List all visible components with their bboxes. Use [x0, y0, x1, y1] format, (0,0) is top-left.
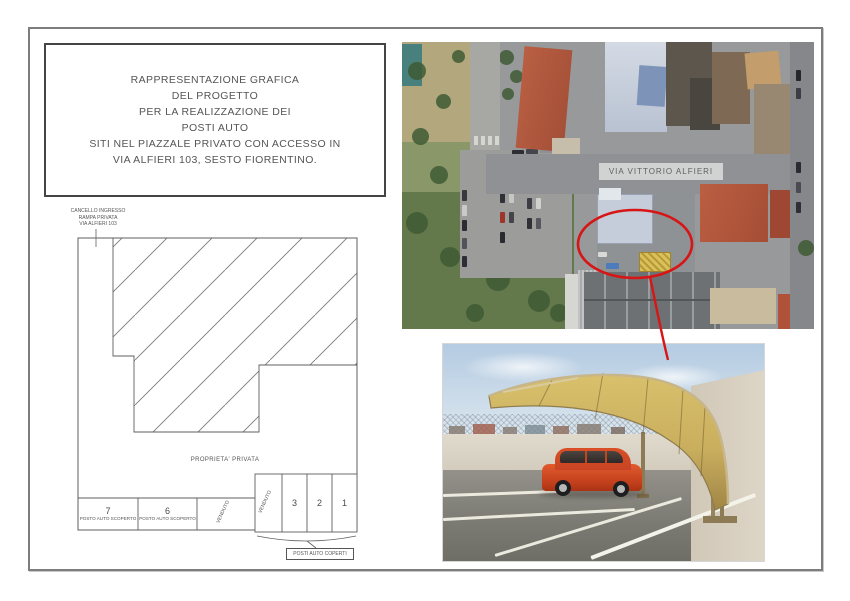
- stall-number: 7: [105, 506, 110, 516]
- blue-roof-panel: [637, 65, 668, 107]
- project-site-hatch: [639, 252, 671, 272]
- title-line: VIA ALFIERI 103, SESTO FIORENTINO.: [113, 152, 317, 168]
- parked-blue-car: [606, 263, 619, 269]
- title-line: PER LA REALIZZAZIONE DEI: [139, 104, 291, 120]
- stall-3: 3: [282, 474, 307, 532]
- project-building-roof: [597, 194, 653, 244]
- car-wheel: [555, 480, 571, 496]
- stall-label: POSTO AUTO SCOPERTO: [80, 516, 137, 522]
- title-line: POSTI AUTO: [182, 120, 249, 136]
- red-roof-building: [516, 46, 573, 152]
- terracotta-roof: [700, 184, 768, 242]
- project-sheet: RAPPRESENTAZIONE GRAFICA DEL PROGETTO PE…: [0, 0, 850, 601]
- stall-2: 2: [307, 474, 332, 532]
- stall-1: 1: [332, 474, 357, 532]
- stall-label: POSTO AUTO SCOPERTO: [139, 516, 196, 522]
- street-name-label: VIA VITTORIO ALFIERI: [599, 163, 723, 180]
- gate-label-line: VIA ALFIERI 103: [56, 221, 140, 228]
- stall-number: 6: [165, 506, 170, 516]
- car-wheel: [613, 481, 629, 497]
- right-street: [790, 42, 814, 329]
- title-line: RAPPRESENTAZIONE GRAFICA: [131, 72, 300, 88]
- title-line: DEL PROGETTO: [172, 88, 258, 104]
- private-property-label: PROPRIETA' PRIVATA: [160, 457, 290, 463]
- title-box: RAPPRESENTAZIONE GRAFICA DEL PROGETTO PE…: [44, 43, 386, 197]
- stall-6: 6 POSTO AUTO SCOPERTO: [138, 499, 197, 528]
- title-line: SITI NEL PIAZZALE PRIVATO CON ACCESSO IN: [89, 136, 340, 152]
- stall-7: 7 POSTO AUTO SCOPERTO: [78, 499, 138, 528]
- covered-stalls-caption: POSTI AUTO COPERTI: [286, 548, 354, 560]
- carport-render: [442, 343, 765, 562]
- gate-entrance-label: CANCELLO INGRESSO RAMPA PRIVATA VIA ALFI…: [56, 208, 140, 228]
- aerial-photo: VIA VITTORIO ALFIERI: [402, 42, 814, 329]
